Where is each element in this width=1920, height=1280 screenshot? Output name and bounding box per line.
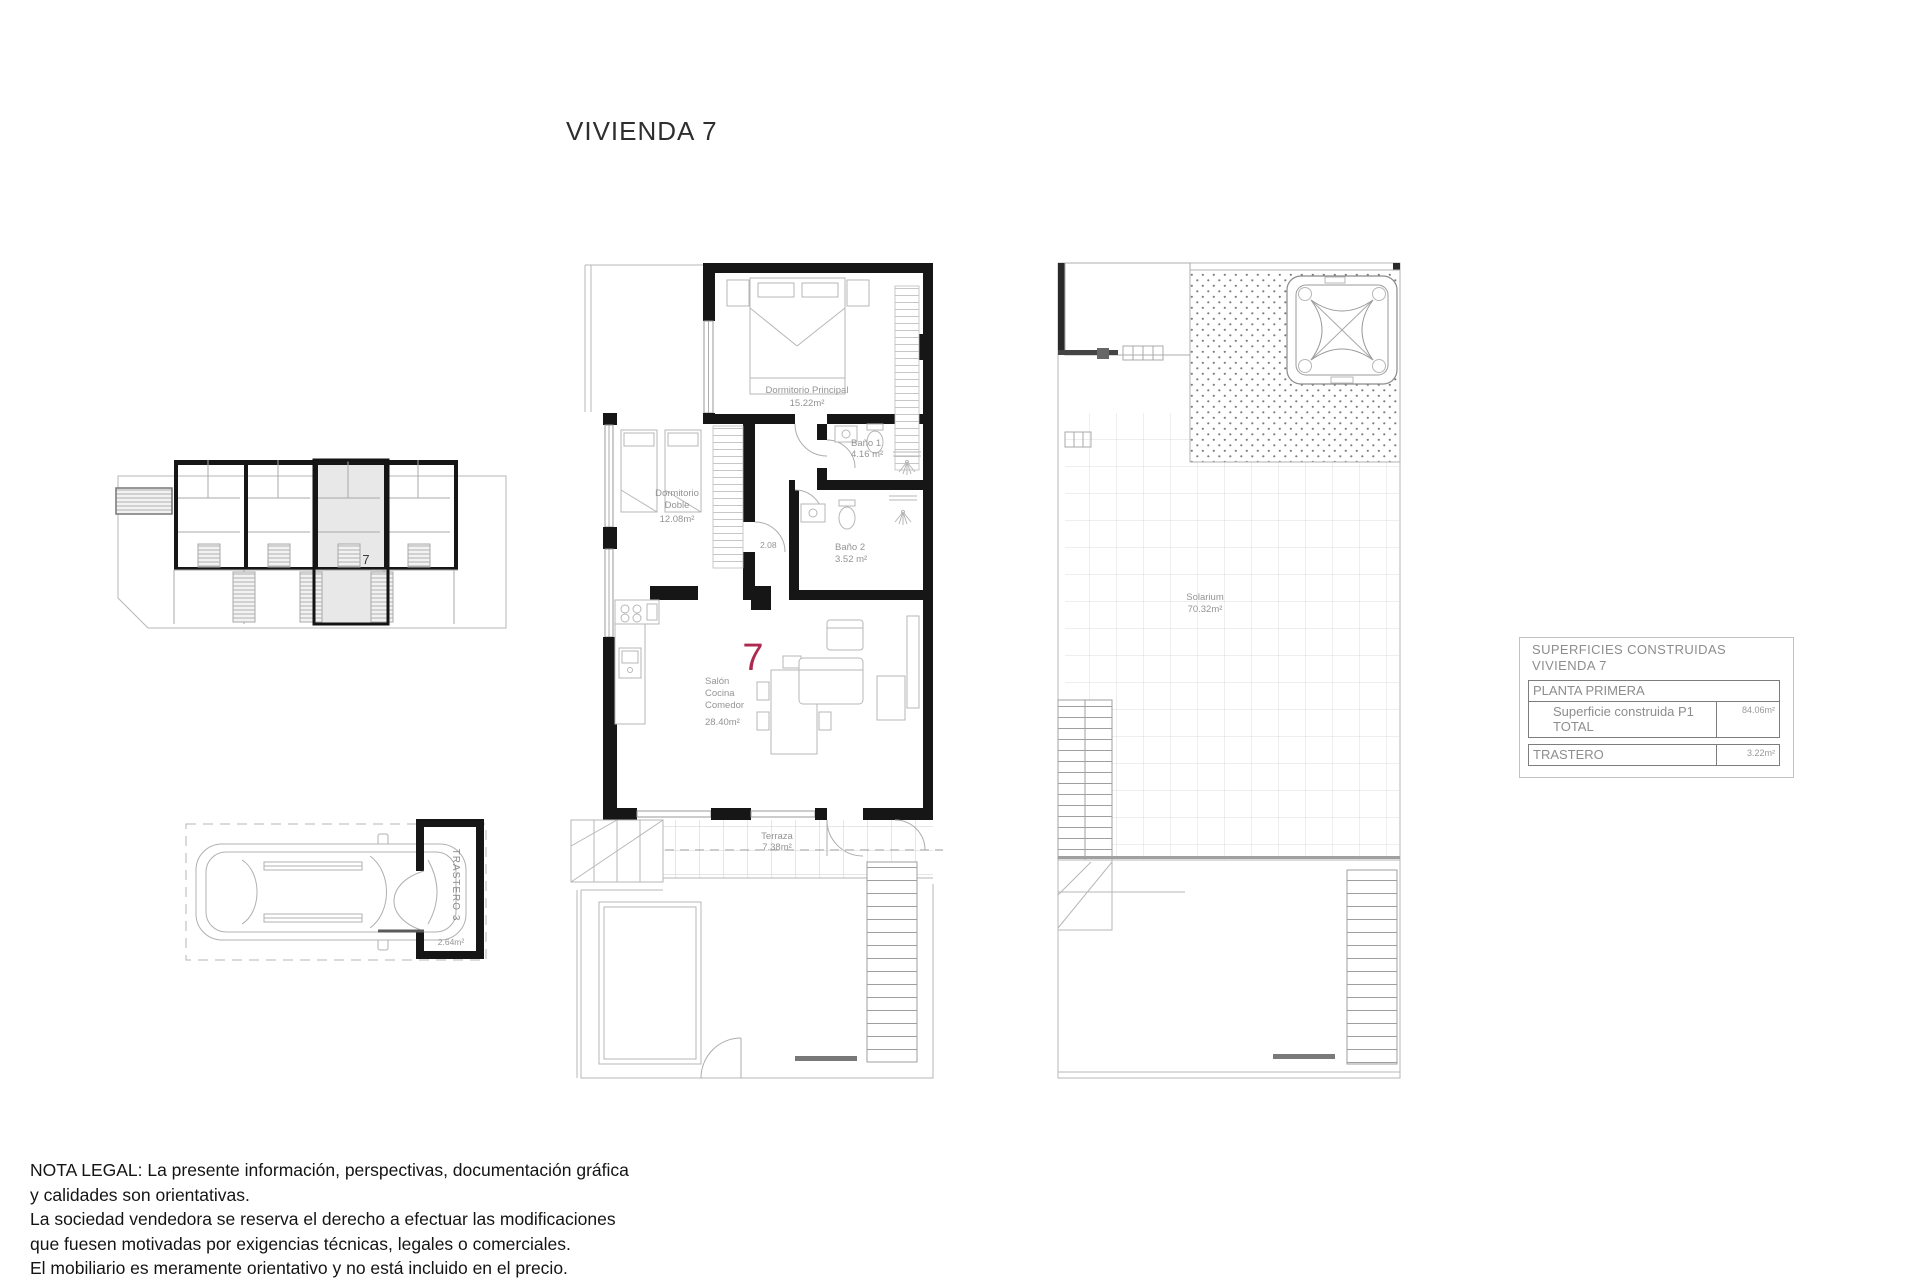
- room-label-bano1: Baño 1: [851, 438, 881, 449]
- room-area-terraza: 7.38m²: [762, 842, 792, 853]
- plan-sheet: VIVIENDA 7: [0, 0, 1920, 1280]
- hall-dimension: 2.08: [760, 540, 777, 550]
- trastero-label: TRASTERO: [1529, 745, 1716, 765]
- spa-skylight-icon: [1287, 276, 1397, 384]
- storage-room-plan: TRASTERO 3 2.64m²: [358, 815, 493, 967]
- planta-primera-box: PLANTA PRIMERA Superficie construida P1 …: [1528, 680, 1780, 738]
- room-label-solarium: Solarium: [1186, 592, 1224, 603]
- trastero-box: TRASTERO 3.22m²: [1528, 744, 1780, 766]
- room-area-dormitorio-principal: 15.22m²: [790, 398, 825, 409]
- storage-door-arc: [394, 871, 424, 931]
- room-label-salon-1: Salón: [705, 676, 729, 687]
- lawn-outline: [599, 902, 701, 1064]
- surface-summary-table: SUPERFICIES CONSTRUIDAS VIVIENDA 7 PLANT…: [1528, 642, 1780, 766]
- gate-icon: [1273, 1054, 1335, 1059]
- legal-line: y calidades son orientativas.: [30, 1183, 770, 1208]
- wardrobe-icon: [713, 426, 743, 568]
- p1-total-label: Superficie construida P1 TOTAL: [1529, 702, 1716, 737]
- kitchen-icons: [615, 600, 659, 724]
- shower-icon: [895, 510, 911, 525]
- bed-double-icon: [727, 278, 919, 470]
- key-units: [174, 460, 458, 624]
- bathroom2-fixtures: [801, 496, 917, 529]
- room-label-salon-3: Comedor: [705, 700, 744, 711]
- room-label-dormitorio-principal: Dormitorio Principal: [766, 385, 849, 396]
- context-lines: [585, 265, 703, 412]
- room-area-bano2: 3.52 m²: [835, 554, 867, 565]
- room-label-bano2: Baño 2: [835, 542, 865, 553]
- stair-exterior-icon: [867, 862, 917, 1062]
- legal-line: que fuesen motivadas por exigencias técn…: [30, 1232, 770, 1257]
- room-area-dormitorio-doble: 12.08m²: [660, 514, 695, 525]
- summary-title-line1: SUPERFICIES CONSTRUIDAS: [1528, 642, 1780, 658]
- wardrobe-icon: [895, 286, 919, 470]
- room-label-terraza: Terraza: [761, 831, 793, 842]
- coffee-table-icon: [877, 676, 905, 720]
- room-area-salon: 28.40m²: [705, 717, 740, 728]
- stair-under-icon: [571, 820, 663, 882]
- solarium-plan: Solarium 70.32m²: [1035, 250, 1415, 1100]
- room-area-bano1: 4.16 m²: [851, 449, 883, 460]
- garden-level: [577, 862, 933, 1078]
- gate-icon: [795, 1056, 857, 1061]
- legal-line: NOTA LEGAL: La presente información, per…: [30, 1158, 770, 1183]
- trastero-value: 3.22m²: [1716, 745, 1779, 765]
- stair-exterior-icon: [1347, 870, 1397, 1064]
- legal-line: La sociedad vendedora se reserva el dere…: [30, 1207, 770, 1232]
- storage-area: 2.64m²: [438, 937, 465, 947]
- summary-title-line2: VIVIENDA 7: [1528, 658, 1780, 674]
- room-label-dormitorio-doble-1: Dormitorio: [655, 488, 699, 499]
- solarium-tile-floor: [1065, 413, 1399, 860]
- key-unit7-number: 7: [362, 552, 369, 567]
- planta-primera-header: PLANTA PRIMERA: [1529, 681, 1779, 702]
- floor-divider-wall: [1058, 856, 1400, 859]
- room-label-salon-2: Cocina: [705, 688, 735, 699]
- sideboard-icon: [907, 616, 919, 708]
- p1-total-row: Superficie construida P1 TOTAL 84.06m²: [1529, 702, 1779, 737]
- sofa-icons: [799, 616, 919, 720]
- room-area-solarium: 70.32m²: [1188, 604, 1223, 615]
- void-notch: [1065, 263, 1190, 355]
- solarium-garden-level: [1058, 860, 1400, 1078]
- key-terrace-band: [174, 570, 458, 624]
- trastero-row: TRASTERO 3.22m²: [1529, 745, 1779, 765]
- main-floor-plan: Dormitorio Principal 15.22m² Baño 1 4.16…: [555, 250, 955, 1100]
- key-annex-block: [116, 488, 172, 514]
- unit-number-badge: 7: [742, 637, 763, 679]
- notch-wall: [1058, 263, 1065, 355]
- page-title: VIVIENDA 7: [566, 116, 718, 147]
- storage-label: TRASTERO 3: [450, 849, 461, 922]
- room-label-dormitorio-doble-2: Doble: [665, 500, 690, 511]
- legal-note: NOTA LEGAL: La presente información, per…: [30, 1158, 770, 1280]
- solarium-stair: [1058, 700, 1112, 930]
- legal-line: El mobiliario es meramente orientativo y…: [30, 1256, 770, 1280]
- key-site-plan: 7: [108, 452, 523, 657]
- p1-total-value: 84.06m²: [1716, 702, 1779, 737]
